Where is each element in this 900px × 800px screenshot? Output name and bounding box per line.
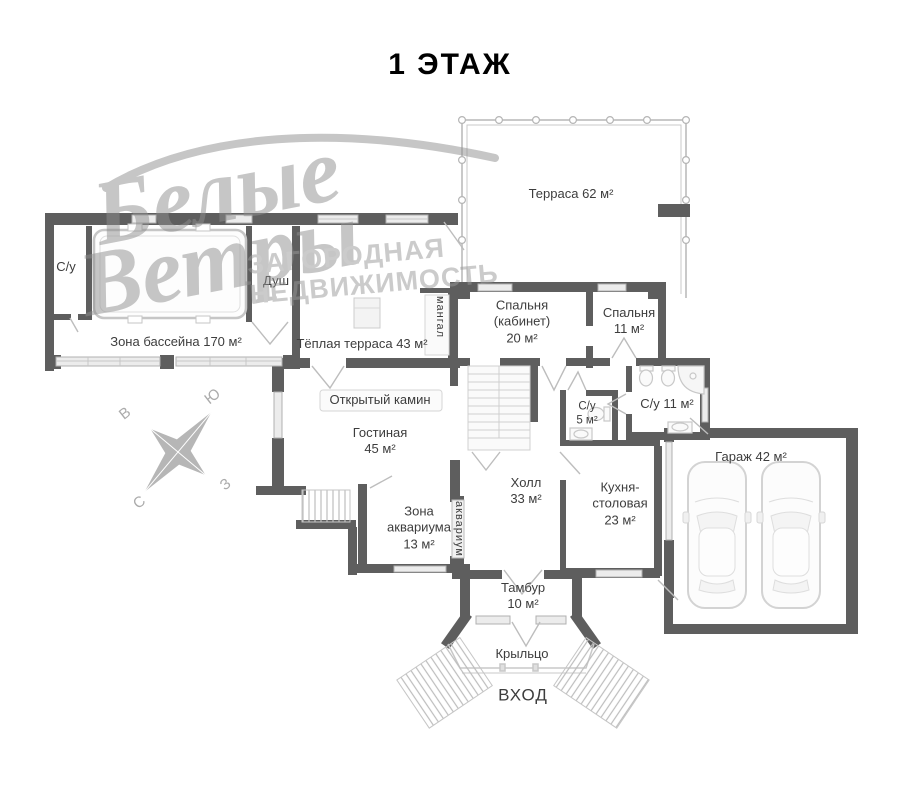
room-label-wc-large: С/у 11 м²	[640, 396, 694, 412]
entrance-label: ВХОД	[498, 684, 548, 705]
room-label-fireplace: Открытый камин	[329, 392, 430, 408]
room-label-terrace: Терраса 62 м²	[529, 186, 614, 202]
room-label-aquarium: аквариум	[451, 501, 465, 557]
pool	[94, 224, 246, 323]
room-label-tambour: Тамбур 10 м²	[501, 580, 545, 613]
room-label-living-room: Гостиная 45 м²	[353, 425, 408, 458]
stairs-basement	[302, 490, 350, 522]
room-label-warm-terrace: Тёплая терраса 43 м²	[296, 336, 427, 352]
floor-plan-drawing	[0, 0, 900, 800]
room-label-porch: Крыльцо	[495, 646, 548, 662]
garage-cars	[683, 462, 825, 608]
room-label-hall: Холл 33 м²	[510, 475, 541, 508]
room-label-garage: Гараж 42 м²	[715, 449, 787, 465]
terrace-structure	[462, 120, 686, 298]
stairs-main	[468, 366, 530, 450]
room-label-kitchen: Кухня- столовая 23 м²	[592, 480, 647, 529]
room-label-wc-pool: С/у	[56, 259, 76, 275]
porch-stairs-right	[554, 638, 649, 729]
room-label-pool-zone: Зона бассейна 170 м²	[110, 334, 242, 350]
room-label-aquarium-zone: Зона аквариума 13 м²	[387, 504, 451, 553]
room-label-bedroom: Спальня 11 м²	[603, 305, 655, 338]
terrace-columns	[459, 117, 690, 244]
porch-stairs-left	[397, 638, 492, 729]
room-label-bbq: мангал	[432, 296, 446, 338]
room-label-shower: Душ	[263, 273, 289, 289]
room-label-wc-small: С/у 5 м²	[576, 400, 597, 429]
room-label-bedroom-office: Спальня (кабинет) 20 м²	[494, 298, 551, 347]
floor-plan-page: 1 ЭТАЖ	[0, 0, 900, 800]
